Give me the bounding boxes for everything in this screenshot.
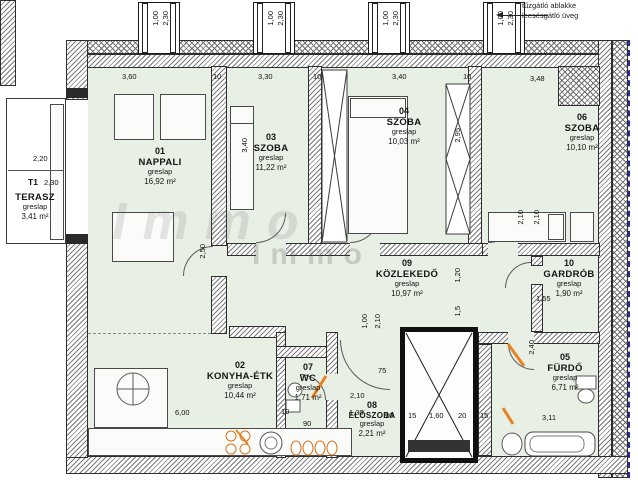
terrace-label: TERASZ greslap 3,41 m² [8, 192, 62, 221]
room-number: 07 [286, 362, 330, 373]
wardrobe-szoba03 [322, 70, 347, 242]
room-area: 10,10 m² [538, 143, 626, 152]
dim-label: 1,30 [349, 408, 364, 417]
room-material: greslap [182, 382, 298, 391]
pendant-lamp [117, 373, 149, 405]
floor-plan: 1,00 2,30 1,00 2,30 1,00 2,30 1,00 2,30 [0, 0, 638, 480]
room-area: 16,92 m² [110, 177, 210, 186]
terrace-area: 3,41 m² [8, 212, 62, 221]
room-area: 1,71 m² [286, 393, 330, 402]
room-area: 10,03 m² [358, 137, 450, 146]
dim-label: 6,00 [175, 408, 190, 417]
room-label-szoba04: 04 SZOBA greslap 10,03 m² [358, 106, 450, 146]
room-area: 10,97 m² [352, 289, 462, 298]
note-arrow-line [502, 15, 548, 16]
dim-label: 15 [480, 411, 488, 420]
dim-label: 10 [281, 407, 289, 416]
room-label-eloszoba: 08 ELŐSZOBA greslap 2,21 m² [340, 400, 404, 438]
dim-label: 2,95 [453, 128, 462, 143]
dim-label: 3,40 [392, 72, 407, 81]
radiator-ovals [291, 441, 337, 455]
room-material: greslap [286, 384, 330, 393]
bathtub [525, 432, 595, 456]
terrace-material: greslap [8, 203, 62, 212]
dim-label: 3,11 [542, 413, 556, 422]
dim-label: 10 [463, 72, 471, 81]
dim-label: 2,10 [532, 210, 541, 225]
room-number: 01 [110, 146, 210, 157]
dim-label: 75 [378, 366, 386, 375]
dim-label: 2,10 [373, 314, 382, 329]
dim-label: 10 [313, 72, 321, 81]
room-material: greslap [536, 280, 602, 289]
room-area: 10,44 m² [182, 391, 298, 400]
room-material: greslap [538, 134, 626, 143]
dim-label: 2,40 [527, 340, 536, 355]
note-arrowhead-icon [496, 12, 503, 18]
room-label-wc: 07 WC greslap 1,71 m² [286, 362, 330, 402]
room-material: greslap [352, 280, 462, 289]
room-label-szoba06: 06 SZOBA greslap 10,10 m² [538, 112, 626, 152]
room-material: greslap [358, 128, 450, 137]
dim-label: 3,60 [122, 72, 137, 81]
dim-label: 10 [213, 72, 221, 81]
dim-label: 1,55 [536, 294, 551, 303]
kitchen-sink [260, 432, 282, 454]
note-line-1: tűzgátló ablakke [522, 1, 638, 11]
room-material: greslap [530, 374, 600, 383]
room-material: greslap [110, 168, 210, 177]
dim-label: 3,40 [240, 138, 249, 153]
dim-label: 90 [303, 419, 311, 428]
dim-label: 20 [385, 411, 393, 420]
terrace-number: T1 [28, 177, 38, 187]
dim-label: 2,20 [33, 154, 48, 163]
room-number: 10 [536, 258, 602, 269]
dim-label: 3,48 [530, 74, 545, 83]
room-label-gardrob: 10 GARDRÓB greslap 1,90 m² [536, 258, 602, 298]
dim-label: 2,10 [516, 210, 525, 225]
watermark-line2: Immo [252, 238, 372, 272]
room-number: 05 [530, 352, 600, 363]
room-number: 02 [182, 360, 298, 371]
bathroom-sink [502, 433, 522, 455]
dim-label: 1,00 [360, 314, 369, 329]
dim-label: 2,30 [44, 178, 59, 187]
room-area: 11,22 m² [235, 163, 307, 172]
room-material: greslap [340, 420, 404, 429]
annotation-note: tűzgátló ablakke leesésgátló üveg [522, 1, 638, 21]
room-area: 2,21 m² [340, 429, 404, 438]
dim-label: 3,30 [258, 72, 273, 81]
dim-label: 2,10 [350, 391, 365, 400]
dim-label: 1,20 [453, 268, 462, 283]
room-material: greslap [235, 154, 307, 163]
dim-label: 20 [458, 411, 466, 420]
room-number: 04 [358, 106, 450, 117]
dim-label: 1,5 [453, 306, 462, 316]
room-label-furdo: 05 FÜRDŐ greslap 6,71 m² [530, 352, 600, 392]
dim-label: 15 [408, 411, 416, 420]
entry-door-cross [406, 333, 472, 457]
room-number: 06 [538, 112, 626, 123]
room-label-konyha: 02 KONYHA-ÉTK greslap 10,44 m² [182, 360, 298, 400]
dim-label: 1,60 [429, 411, 444, 420]
room-label-nappali: 01 NAPPALI greslap 16,92 m² [110, 146, 210, 186]
room-area: 6,71 m² [530, 383, 600, 392]
